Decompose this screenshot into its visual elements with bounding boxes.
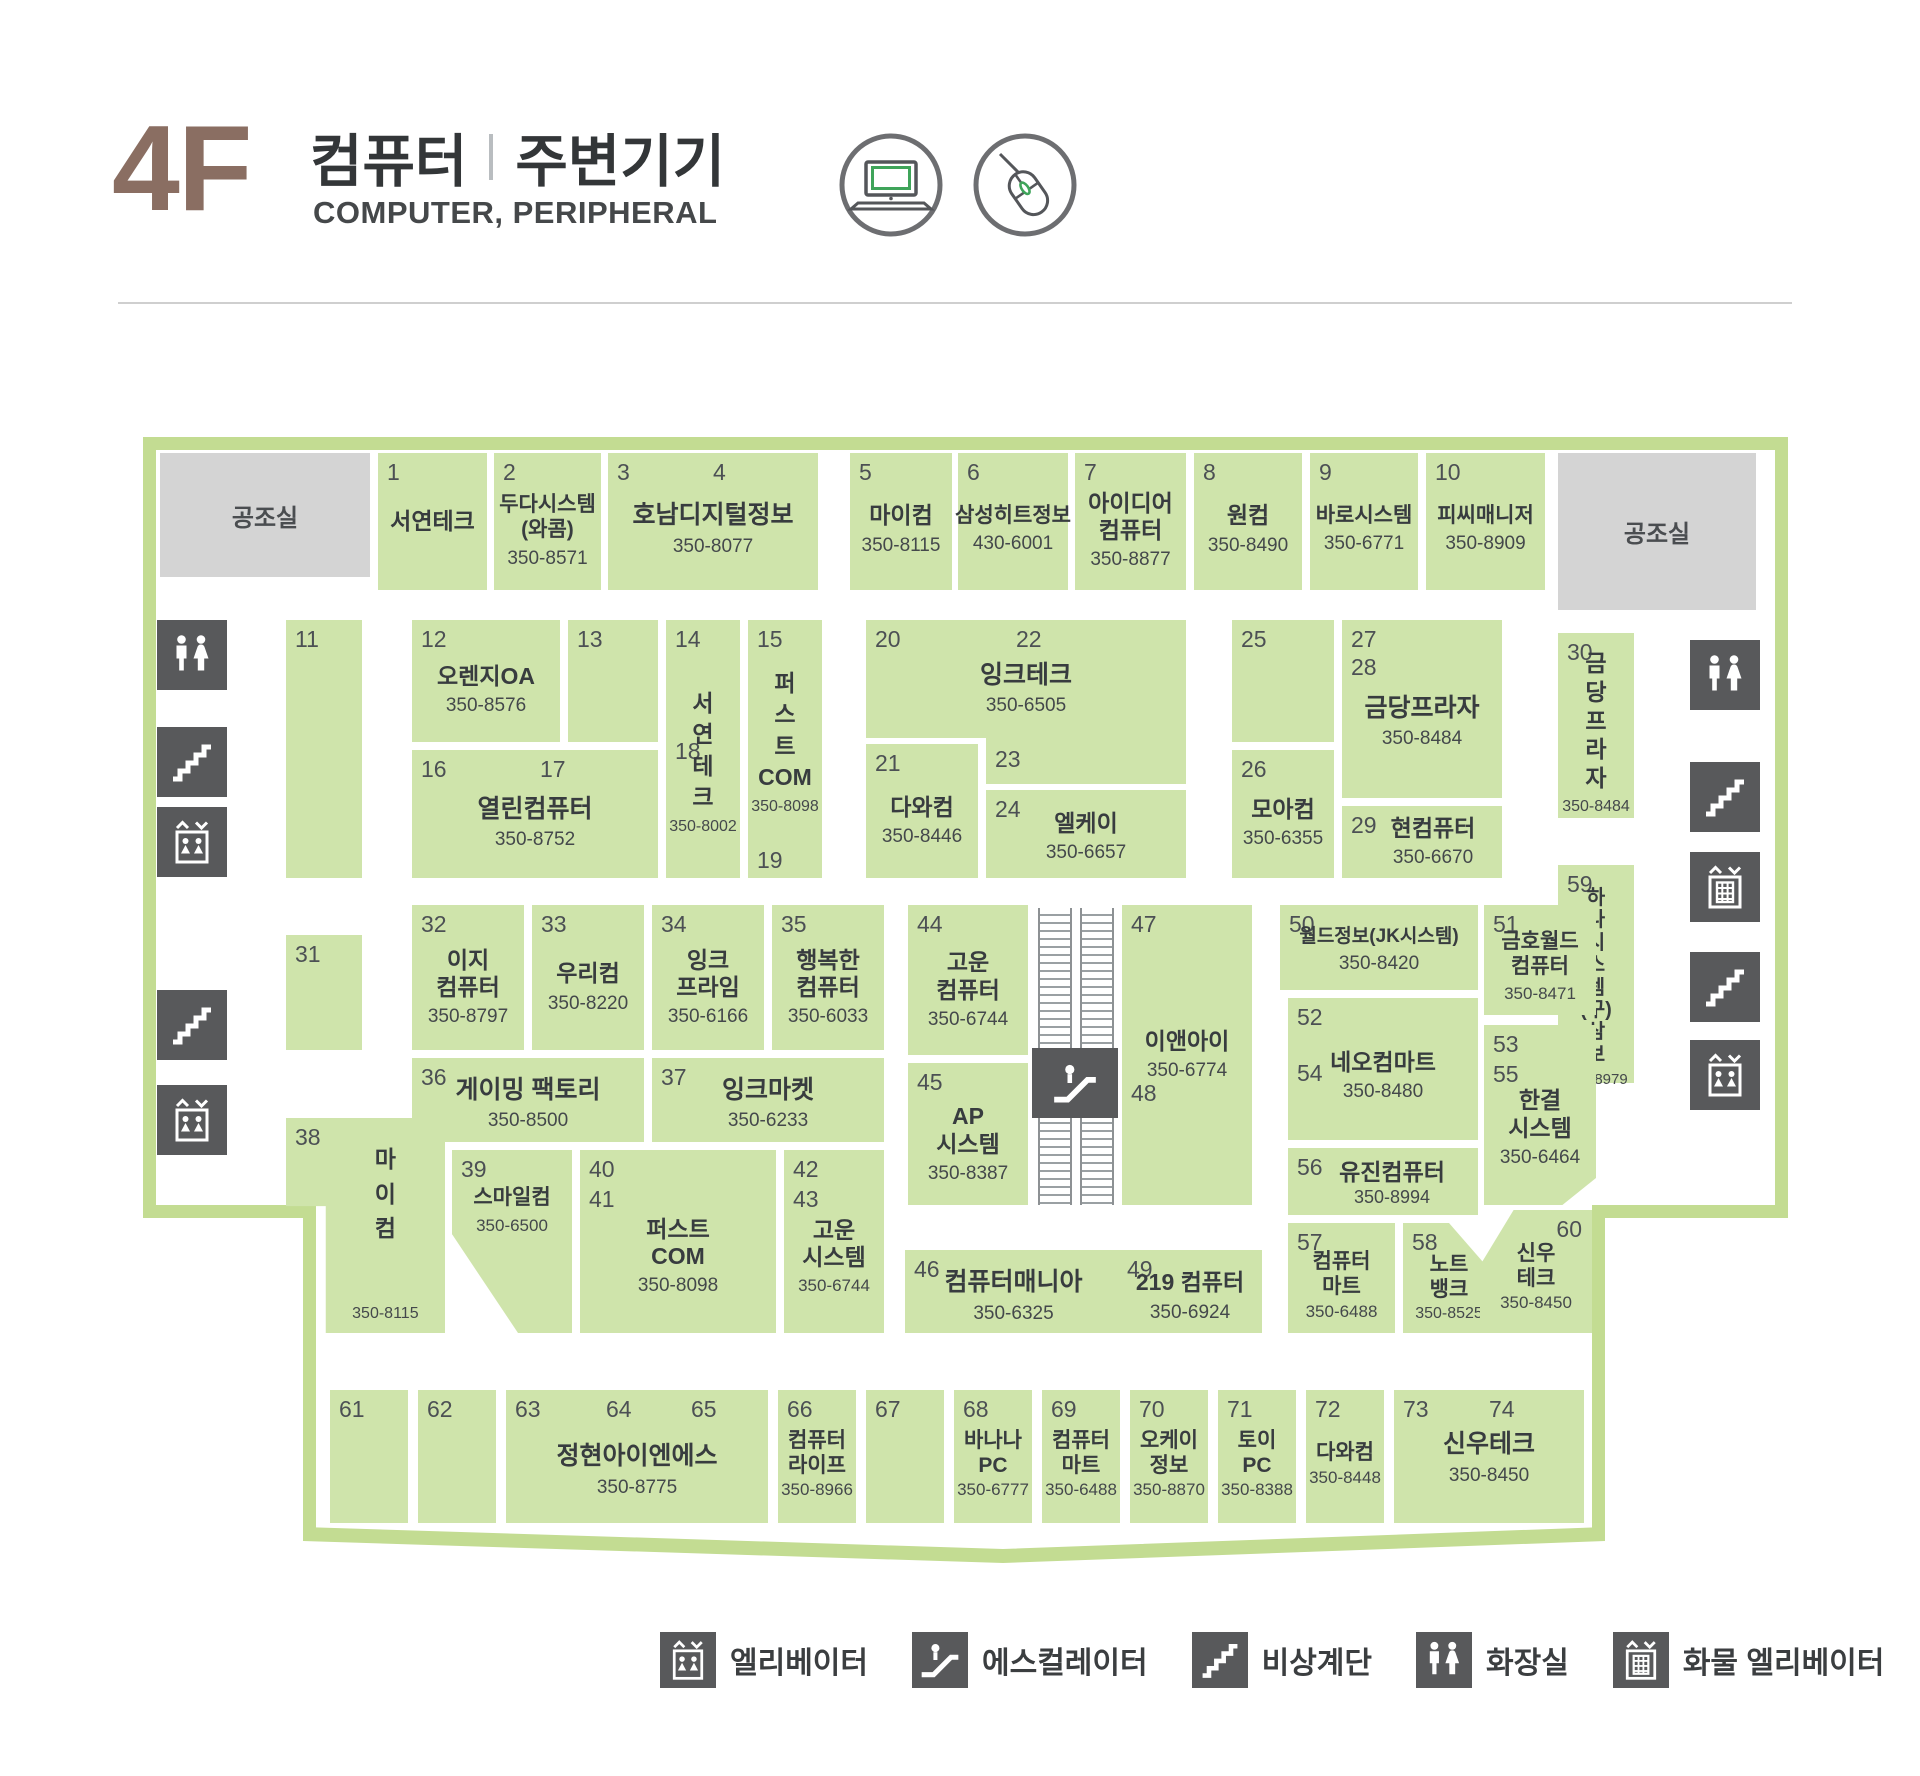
unit-name: 고운 컴퓨터 <box>936 949 999 1003</box>
escalator-icon <box>912 1632 968 1688</box>
unit-name: 엘케이 <box>1054 810 1117 837</box>
unit-name: 원컴 <box>1227 502 1269 529</box>
unit-name: 오케이 정보 <box>1140 1429 1198 1479</box>
unit-5: 5마이컴350-8115 <box>850 453 952 590</box>
unit-name: 금당프라자 <box>1364 694 1479 724</box>
map-outline-left <box>143 437 156 1218</box>
page-title: 컴퓨터 주변기기 <box>310 116 725 198</box>
floor-label: 4F <box>112 98 250 238</box>
unit-name: 마 이 컴 <box>375 1142 396 1246</box>
unit-phone: 350-8450 <box>1500 1293 1572 1313</box>
unit-42-43: 4243고운 시스템350-6744 <box>784 1150 884 1333</box>
unit-26: 26모아컴350-6355 <box>1232 750 1334 878</box>
unit-phone: 350-6670 <box>1393 847 1473 869</box>
unit-phone: 350-8571 <box>507 548 587 570</box>
unit-name: 두다시스템 (와콤) <box>499 493 596 543</box>
title-ko-left: 컴퓨터 <box>310 116 467 198</box>
map-outline-left-inward <box>143 1205 316 1218</box>
restroom-icon <box>1416 1632 1472 1688</box>
unit-27-28: 2728금당프라자350-8484 <box>1342 620 1502 798</box>
unit-10: 10피씨매니저350-8909 <box>1426 453 1545 590</box>
unit-49: 49219 컴퓨터350-6924 <box>1118 1250 1262 1333</box>
machine-room-label: 공조실 <box>232 498 298 533</box>
unit-6: 6삼성히트정보430-6001 <box>958 453 1068 590</box>
unit-name: 월드정보(JK시스템) <box>1299 926 1458 948</box>
unit-20-22: 2022잉크테크350-6505 <box>866 620 1186 738</box>
unit-30: 30금 당 프 라 자350-8484 <box>1558 633 1634 818</box>
unit-phone: 350-6166 <box>668 1006 748 1028</box>
unit-phone: 350-6744 <box>798 1276 870 1296</box>
unit-number: 61 <box>339 1396 365 1423</box>
unit-47-48: 4748이앤아이350-6774 <box>1122 905 1252 1205</box>
unit-number: 38 <box>295 1124 321 1151</box>
unit-name: 이지 컴퓨터 <box>436 947 499 1001</box>
legend-item-escalator: 에스컬레이터 <box>912 1632 1148 1688</box>
unit-phone: 350-8994 <box>1354 1187 1430 1208</box>
unit-name: 다와컴 <box>890 794 953 821</box>
legend: 엘리베이터 에스컬레이터 비상계단 화장실 화물 엘리베이터 <box>660 1632 1884 1688</box>
unit-phone: 350-8098 <box>751 798 819 816</box>
unit-67: 67 <box>866 1390 944 1523</box>
unit-number: 11 <box>295 626 319 653</box>
unit-name: 잉크마켓 <box>722 1076 814 1106</box>
legend-item-restroom: 화장실 <box>1416 1632 1569 1688</box>
machine-room-right: 공조실 <box>1558 453 1756 610</box>
unit-phone: 350-6744 <box>928 1009 1008 1031</box>
unit-14-18: 1418서 연 테 크350-8002 <box>666 620 740 878</box>
elevator-icon <box>1690 1040 1760 1110</box>
unit-phone: 350-6233 <box>728 1110 808 1132</box>
unit-phone: 350-6505 <box>986 695 1066 717</box>
unit-phone: 350-8966 <box>781 1480 853 1500</box>
unit-70: 70오케이 정보350-8870 <box>1130 1390 1208 1523</box>
unit-number: 25 <box>1241 626 1267 653</box>
laptop-icon <box>838 132 944 238</box>
unit-name: 토이 PC <box>1238 1429 1277 1479</box>
legend-item-freight-elevator: 화물 엘리베이터 <box>1613 1632 1885 1688</box>
restroom-icon <box>157 620 227 690</box>
elevator-icon <box>157 1085 227 1155</box>
legend-label: 화장실 <box>1486 1638 1569 1682</box>
unit-phone: 350-8450 <box>1449 1465 1529 1487</box>
unit-name: 신우테크 <box>1443 1430 1535 1460</box>
unit-number: 23 <box>995 746 1021 773</box>
legend-label: 에스컬레이터 <box>982 1638 1148 1682</box>
unit-phone: 350-8484 <box>1382 728 1462 750</box>
unit-phone: 350-8098 <box>638 1275 718 1297</box>
title-ko-right: 주변기기 <box>515 116 725 198</box>
unit-name: 컴퓨터 마트 <box>1052 1429 1110 1479</box>
legend-item-elevator: 엘리베이터 <box>660 1632 868 1688</box>
unit-33: 33우리컴350-8220 <box>532 905 644 1050</box>
unit-name: 스마일컴 <box>473 1186 550 1211</box>
unit-phone: 350-6924 <box>1150 1302 1230 1324</box>
unit-7: 7아이디어 컴퓨터350-8877 <box>1075 453 1186 590</box>
unit-phone: 350-8525 <box>1415 1305 1483 1323</box>
unit-11: 11 <box>286 620 362 878</box>
unit-phone: 350-8388 <box>1221 1480 1293 1500</box>
unit-name: 퍼 스 트 COM <box>758 668 812 792</box>
unit-32: 32이지 컴퓨터350-8797 <box>412 905 524 1050</box>
escalator-icon <box>1032 1048 1118 1118</box>
unit-phone: 350-8115 <box>352 1305 418 1323</box>
map-outline-right <box>1775 437 1788 1218</box>
unit-number: 31 <box>295 941 321 968</box>
unit-39: 39스마일컴350-6500 <box>452 1150 572 1333</box>
unit-35: 35행복한 컴퓨터350-6033 <box>772 905 884 1050</box>
unit-68: 68바나나 PC350-6777 <box>954 1390 1032 1523</box>
unit-name: 오렌지OA <box>437 663 535 690</box>
unit-phone: 350-8576 <box>446 695 526 717</box>
unit-phone: 350-8752 <box>495 829 575 851</box>
unit-name: 서 연 테 크 <box>692 688 713 812</box>
unit-name: 아이디어 컴퓨터 <box>1088 490 1173 544</box>
unit-name: 컴퓨터매니아 <box>944 1268 1082 1298</box>
stairs-icon <box>1690 762 1760 832</box>
unit-name: 노트 뱅크 <box>1430 1253 1469 1303</box>
unit-phone: 430-6001 <box>973 533 1053 555</box>
stairs-icon <box>157 990 227 1060</box>
unit-name: 고운 시스템 <box>802 1217 865 1271</box>
unit-name: 퍼스트 COM <box>646 1216 709 1270</box>
legend-label: 엘리베이터 <box>730 1638 868 1682</box>
unit-phone: 350-8420 <box>1339 953 1419 975</box>
map-outline-top <box>143 437 1788 450</box>
unit-3-4: 34호남디지털정보350-8077 <box>608 453 818 590</box>
unit-phone: 350-8484 <box>1562 798 1630 816</box>
unit-phone: 350-8220 <box>548 993 628 1015</box>
stairs-icon <box>157 727 227 797</box>
unit-24: 24엘케이350-6657 <box>986 790 1186 878</box>
stairs-icon <box>1192 1632 1248 1688</box>
map-outline-bottom <box>303 1527 1605 1567</box>
unit-25: 25 <box>1232 620 1334 742</box>
elevator-icon <box>660 1632 716 1688</box>
unit-31: 31 <box>286 935 362 1050</box>
unit-37: 37잉크마켓350-6233 <box>652 1058 884 1142</box>
unit-name: 마이컴 <box>869 502 932 529</box>
unit-phone: 350-6488 <box>1306 1302 1378 1322</box>
unit-23-area: 23 <box>986 738 1186 784</box>
unit-name: 신우 테크 <box>1517 1242 1556 1292</box>
unit-name: 바나나 PC <box>964 1429 1022 1479</box>
unit-name: AP 시스템 <box>936 1103 999 1157</box>
unit-phone: 350-6771 <box>1324 533 1404 555</box>
unit-name: 금 당 프 라 자 <box>1585 649 1606 793</box>
unit-56: 56유진컴퓨터350-8994 <box>1288 1148 1478 1215</box>
unit-45: 45AP 시스템350-8387 <box>908 1063 1028 1205</box>
unit-34: 34잉크 프라임350-6166 <box>652 905 764 1050</box>
unit-phone: 350-8490 <box>1208 535 1288 557</box>
unit-name: 금호월드 컴퓨터 <box>1501 930 1578 980</box>
unit-phone: 350-8480 <box>1343 1081 1423 1103</box>
unit-51: 51금호월드 컴퓨터350-8471 <box>1484 905 1596 1015</box>
unit-52-54: 5254네오컴마트350-8480 <box>1288 998 1478 1140</box>
unit-name: 이앤아이 <box>1145 1028 1230 1055</box>
unit-name: 피씨매니저 <box>1437 504 1534 529</box>
unit-name: 잉크 프라임 <box>676 947 739 1001</box>
unit-phone: 350-8002 <box>669 818 737 836</box>
mouse-icon <box>972 132 1078 238</box>
restroom-icon <box>1690 640 1760 710</box>
stairs-icon <box>1690 952 1760 1022</box>
unit-60: 60신우 테크350-8450 <box>1480 1210 1592 1333</box>
freight-elevator-icon <box>1690 852 1760 922</box>
unit-phone: 350-8448 <box>1309 1468 1381 1488</box>
unit-phone: 350-6464 <box>1500 1147 1580 1169</box>
legend-label: 화물 엘리베이터 <box>1683 1638 1885 1682</box>
unit-71: 71토이 PC350-8388 <box>1218 1390 1296 1523</box>
unit-phone: 350-8877 <box>1090 549 1170 571</box>
unit-name: 서연테크 <box>390 508 475 535</box>
unit-name: 모아컴 <box>1251 796 1314 823</box>
unit-phone: 350-8387 <box>928 1163 1008 1185</box>
unit-16-17: 1617열린컴퓨터350-8752 <box>412 750 658 878</box>
unit-44: 44고운 컴퓨터350-6744 <box>908 905 1028 1055</box>
machine-room-left: 공조실 <box>160 453 370 577</box>
unit-63-64-65: 636465정현아이엔에스350-8775 <box>506 1390 768 1523</box>
elevator-icon <box>157 807 227 877</box>
unit-phone: 350-6777 <box>957 1480 1029 1500</box>
unit-15-19: 1519퍼 스 트 COM350-8098 <box>748 620 822 878</box>
unit-66: 66컴퓨터 라이프350-8966 <box>778 1390 856 1523</box>
unit-36: 36게이밍 팩토리350-8500 <box>412 1058 644 1142</box>
legend-label: 비상계단 <box>1262 1638 1372 1682</box>
unit-phone: 350-8797 <box>428 1006 508 1028</box>
unit-phone: 350-6774 <box>1147 1060 1227 1082</box>
unit-phone: 350-8775 <box>597 1477 677 1499</box>
unit-2: 2두다시스템 (와콤)350-8571 <box>494 453 601 590</box>
unit-number: 13 <box>577 626 603 653</box>
unit-69: 69컴퓨터 마트350-6488 <box>1042 1390 1120 1523</box>
machine-room-label: 공조실 <box>1624 514 1690 549</box>
unit-name: 다와컴 <box>1316 1441 1374 1466</box>
unit-phone: 350-8909 <box>1445 533 1525 555</box>
unit-phone: 350-8077 <box>673 536 753 558</box>
unit-name: 잉크테크 <box>980 661 1072 691</box>
unit-8: 8원컴350-8490 <box>1194 453 1302 590</box>
unit-phone: 350-6488 <box>1045 1480 1117 1500</box>
unit-name: 네오컴마트 <box>1330 1049 1436 1076</box>
unit-phone: 350-8115 <box>862 535 941 557</box>
unit-9: 9바로시스템350-6771 <box>1310 453 1418 590</box>
page-subtitle: COMPUTER, PERIPHERAL <box>313 195 717 231</box>
unit-61: 61 <box>330 1390 408 1523</box>
unit-phone: 350-6355 <box>1243 828 1323 850</box>
freight-elevator-icon <box>1613 1632 1669 1688</box>
unit-name: 한결 시스템 <box>1508 1087 1571 1141</box>
unit-12: 12오렌지OA350-8576 <box>412 620 560 742</box>
unit-phone: 350-6500 <box>476 1216 548 1236</box>
unit-62: 62 <box>418 1390 496 1523</box>
unit-number: 62 <box>427 1396 453 1423</box>
unit-name: 열린컴퓨터 <box>477 795 592 825</box>
legend-item-stairs: 비상계단 <box>1192 1632 1372 1688</box>
map-outline-left-lower <box>303 1205 316 1540</box>
map-outline-right-inward <box>1592 1205 1788 1218</box>
unit-name: 행복한 컴퓨터 <box>796 947 859 1001</box>
unit-phone: 350-6033 <box>788 1006 868 1028</box>
unit-phone: 350-8471 <box>1504 984 1576 1004</box>
unit-29: 29현컴퓨터350-6670 <box>1342 806 1502 878</box>
unit-phone: 350-6325 <box>973 1303 1053 1325</box>
unit-name: 호남디지털정보 <box>632 501 793 531</box>
map-outline-right-lower <box>1592 1205 1605 1540</box>
unit-50: 50월드정보(JK시스템)350-8420 <box>1280 905 1478 990</box>
unit-name: 우리컴 <box>556 960 619 987</box>
unit-phone: 350-8870 <box>1133 1480 1205 1500</box>
unit-name: 삼성히트정보 <box>955 504 1071 529</box>
unit-phone: 350-6657 <box>1046 842 1126 864</box>
unit-57: 57컴퓨터 마트350-6488 <box>1288 1223 1395 1333</box>
unit-phone: 350-8446 <box>882 826 962 848</box>
unit-name: 유진컴퓨터 <box>1339 1159 1445 1186</box>
header-divider-line <box>118 302 1792 304</box>
unit-name: 정현아이엔에스 <box>556 1442 717 1472</box>
unit-46: 46컴퓨터매니아350-6325 <box>905 1250 1122 1333</box>
unit-name: 컴퓨터 마트 <box>1313 1250 1371 1300</box>
unit-21: 21다와컴350-8446 <box>866 744 978 878</box>
unit-number: 67 <box>875 1396 901 1423</box>
unit-name: 게이밍 팩토리 <box>456 1076 601 1106</box>
unit-53-55: 5355한결 시스템350-6464 <box>1484 1025 1596 1205</box>
unit-phone: 350-8500 <box>488 1110 568 1132</box>
unit-name: 219 컴퓨터 <box>1136 1269 1244 1296</box>
unit-name: 현컴퓨터 <box>1391 815 1476 842</box>
unit-1: 1서연테크 <box>378 453 487 590</box>
unit-72: 72다와컴350-8448 <box>1306 1390 1384 1523</box>
unit-40-41: 4041퍼스트 COM350-8098 <box>580 1150 776 1333</box>
unit-13: 13 <box>568 620 658 742</box>
unit-73-74: 7374신우테크350-8450 <box>1394 1390 1584 1523</box>
title-divider <box>489 134 493 180</box>
unit-name: 바로시스템 <box>1316 504 1413 529</box>
unit-name: 컴퓨터 라이프 <box>788 1429 846 1479</box>
